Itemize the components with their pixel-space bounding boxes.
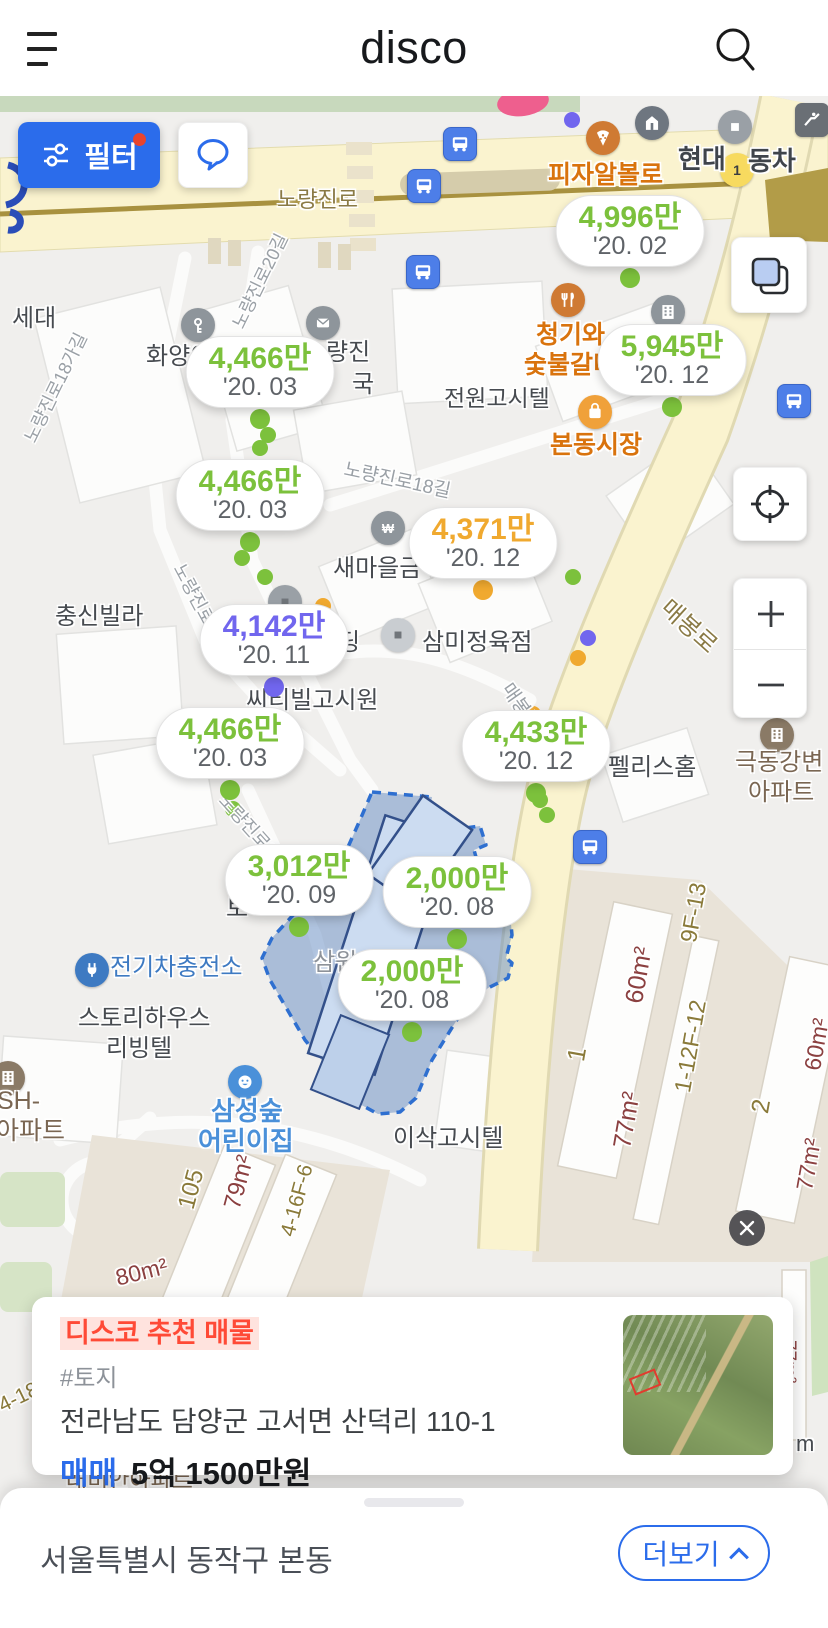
price-bubble[interactable]: 2,000만'20. 08	[338, 949, 487, 1021]
sliders-icon	[40, 139, 72, 171]
svg-text:1: 1	[733, 162, 741, 178]
price-bubble[interactable]: 4,142만'20. 11	[200, 604, 349, 676]
bubble-date: '20. 12	[485, 749, 588, 774]
close-icon	[737, 1218, 757, 1238]
subway-exit-icon	[795, 103, 828, 137]
svg-text:₩: ₩	[382, 521, 395, 536]
apartment-icon	[760, 718, 794, 752]
price-marker-dot[interactable]	[580, 630, 596, 646]
map-label: 아파트	[0, 1118, 65, 1144]
bubble-price: 4,466만	[179, 713, 282, 746]
plus-icon	[754, 597, 788, 631]
app-header: disco	[0, 0, 828, 96]
price-marker-dot[interactable]	[620, 268, 640, 288]
map-label: 극동강변	[735, 750, 823, 775]
price-marker-dot[interactable]	[257, 569, 273, 585]
price-marker-dot[interactable]	[234, 550, 250, 566]
bus-stop-icon	[777, 384, 811, 418]
zoom-in-button[interactable]	[734, 579, 808, 649]
butcher-shop-icon	[381, 618, 415, 652]
bubble-price: 2,000만	[406, 862, 509, 895]
price-bubble[interactable]: 4,371만'20. 12	[409, 507, 558, 579]
crosshair-icon	[747, 481, 793, 527]
price-bubble[interactable]: 4,466만'20. 03	[156, 707, 305, 779]
search-button[interactable]	[710, 24, 762, 76]
price-marker-dot[interactable]	[264, 677, 284, 697]
map-label: 노량진로	[277, 188, 358, 211]
market-icon	[578, 395, 612, 429]
ev-charging-station-icon	[75, 953, 109, 987]
map-label: 펠리스홈	[608, 755, 696, 780]
price-bubble[interactable]: 4,433만'20. 12	[462, 710, 611, 782]
map-label: 어린이집	[198, 1128, 294, 1155]
filter-button[interactable]: 필터	[18, 122, 160, 188]
price-marker-dot[interactable]	[539, 807, 555, 823]
price-bubble[interactable]: 4,466만'20. 03	[186, 336, 335, 408]
price-marker-dot[interactable]	[564, 112, 580, 128]
price-marker-dot[interactable]	[662, 397, 682, 417]
bubble-price: 5,945만	[621, 330, 724, 363]
price-marker-dot[interactable]	[220, 780, 240, 800]
bubble-date: '20. 08	[361, 988, 464, 1013]
bubble-date: '20. 09	[248, 883, 351, 908]
price-bubble[interactable]: 4,466만'20. 03	[176, 459, 325, 531]
map-label: 전기차충전소	[110, 955, 242, 980]
price-bubble[interactable]: 2,000만'20. 08	[383, 856, 532, 928]
bubble-price: 4,433만	[485, 716, 588, 749]
bubble-date: '20. 03	[199, 498, 302, 523]
price-marker-dot[interactable]	[565, 569, 581, 585]
close-card-button[interactable]	[729, 1210, 765, 1246]
bubble-date: '20. 03	[209, 375, 312, 400]
map-label: 동SH-	[0, 1088, 40, 1114]
price-marker-dot[interactable]	[240, 532, 260, 552]
map-label: 새마을금	[333, 556, 421, 581]
bubble-date: '20. 08	[406, 895, 509, 920]
bubble-price: 4,466만	[199, 465, 302, 498]
bubble-date: '20. 02	[579, 234, 682, 259]
bubble-price: 4,996만	[579, 201, 682, 234]
map-label: 현대	[678, 146, 726, 173]
bus-stop-icon	[573, 830, 607, 864]
bubble-price: 4,371만	[432, 513, 535, 546]
price-marker-dot[interactable]	[252, 440, 268, 456]
satellite-thumbnail	[623, 1315, 773, 1455]
bus-stop-icon	[407, 169, 441, 203]
map-label: 충신빌라	[55, 604, 143, 629]
price-marker-dot[interactable]	[250, 409, 270, 429]
map-label: 리빙텔	[106, 1036, 172, 1061]
map-label: 동차	[748, 148, 796, 175]
price-bubble[interactable]: 3,012만'20. 09	[225, 844, 374, 916]
locate-button[interactable]	[733, 467, 807, 541]
sheet-handle[interactable]	[364, 1498, 464, 1507]
map-label: 이삭고시텔	[393, 1126, 503, 1151]
app-logo: disco	[0, 22, 828, 74]
chat-bubble-icon	[193, 135, 233, 175]
recommended-property-card[interactable]: 디스코 추천 매물 #토지 전라남도 담양군 고서면 산덕리 110-1 매매5…	[32, 1297, 793, 1475]
post-office-icon	[306, 306, 340, 340]
map-label: 스토리하우스	[78, 1006, 210, 1031]
price-marker-dot[interactable]	[289, 917, 309, 937]
bubble-price: 4,466만	[209, 342, 312, 375]
chevron-up-icon	[729, 1547, 749, 1567]
bubble-price: 4,142만	[223, 610, 326, 643]
bottom-sheet: 서울특별시 동작구 본동 더보기	[0, 1488, 828, 1628]
landmark-icon	[635, 106, 669, 140]
bank-won-icon: ₩	[371, 511, 405, 545]
bubble-date: '20. 12	[432, 546, 535, 571]
bubble-price: 3,012만	[248, 850, 351, 883]
minus-icon	[754, 668, 788, 702]
price-marker-dot[interactable]	[402, 1022, 422, 1042]
more-label: 더보기	[642, 1533, 719, 1573]
chat-button[interactable]	[178, 122, 248, 188]
bubble-price: 2,000만	[361, 955, 464, 988]
search-icon	[710, 24, 762, 76]
daycare-icon	[228, 1065, 262, 1099]
notification-dot	[133, 133, 146, 146]
price-bubble[interactable]: 5,945만'20. 12	[598, 324, 747, 396]
recommend-badge: 디스코 추천 매물	[60, 1317, 259, 1350]
layers-button[interactable]	[731, 237, 807, 313]
zoom-out-button[interactable]	[734, 650, 808, 720]
bubble-date: '20. 03	[179, 746, 282, 771]
filter-label: 필터	[84, 134, 137, 176]
deal-type: 매매	[60, 1456, 117, 1491]
map-label: 삼성숲	[211, 1098, 283, 1125]
map-label: m	[796, 1432, 814, 1455]
more-button[interactable]: 더보기	[618, 1525, 770, 1581]
app-screen: 노량진로피자알볼로현대동차청기와숯불갈비본동시장전원고시텔량진국화양이세대새마을…	[0, 0, 828, 1628]
map-label: 청기와	[536, 322, 605, 348]
current-region-label: 서울특별시 동작구 본동	[40, 1536, 333, 1580]
layers-icon	[744, 250, 794, 300]
restaurant-icon	[551, 283, 585, 317]
pizza-restaurant-icon	[586, 121, 620, 155]
price-marker-dot[interactable]	[570, 650, 586, 666]
car-dealer-icon	[718, 110, 752, 144]
price-marker-dot[interactable]	[447, 929, 467, 949]
bus-stop-icon	[443, 127, 477, 161]
map-label: 아파트	[748, 780, 814, 805]
map-label: 본동시장	[550, 432, 642, 458]
price-marker-dot[interactable]	[473, 580, 493, 600]
map-label: 국	[352, 372, 374, 397]
map-label: 전원고시텔	[444, 386, 550, 410]
bus-stop-icon	[406, 255, 440, 289]
map-label: 삼미정육점	[422, 630, 532, 655]
bubble-date: '20. 11	[223, 643, 326, 668]
property-price: 5억 1500만원	[131, 1456, 311, 1491]
price-bubble[interactable]: 4,996만'20. 02	[556, 195, 705, 267]
bubble-date: '20. 12	[621, 363, 724, 388]
map-label: 피자알볼로	[548, 162, 663, 188]
map-label: 세대	[12, 306, 56, 331]
zoom-control	[733, 578, 807, 718]
price-marker-dot[interactable]	[526, 783, 546, 803]
